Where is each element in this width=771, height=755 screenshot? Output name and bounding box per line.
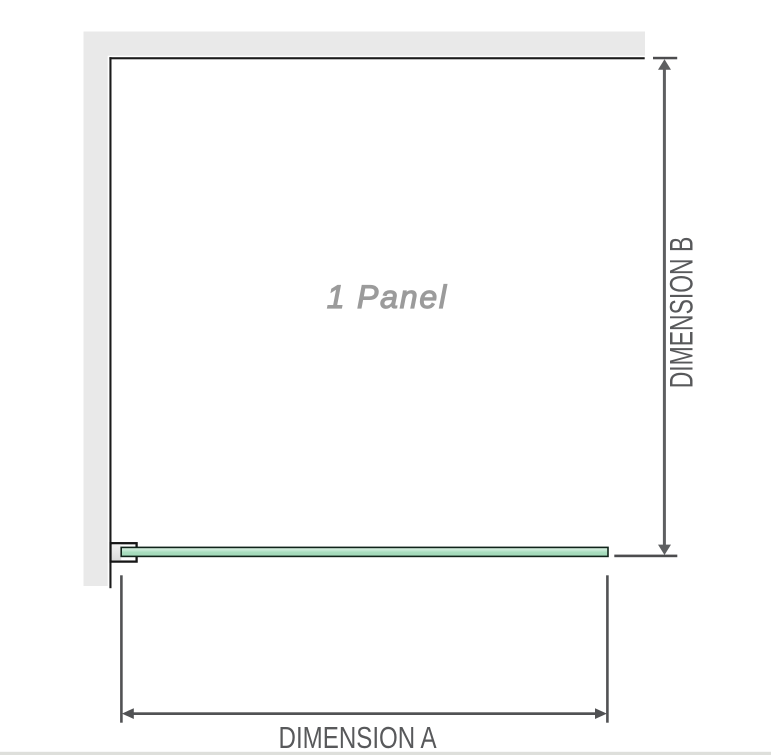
svg-text:DIMENSION B: DIMENSION B xyxy=(664,237,700,389)
svg-text:1 Panel: 1 Panel xyxy=(327,279,448,315)
svg-text:DIMENSION A: DIMENSION A xyxy=(279,720,438,755)
